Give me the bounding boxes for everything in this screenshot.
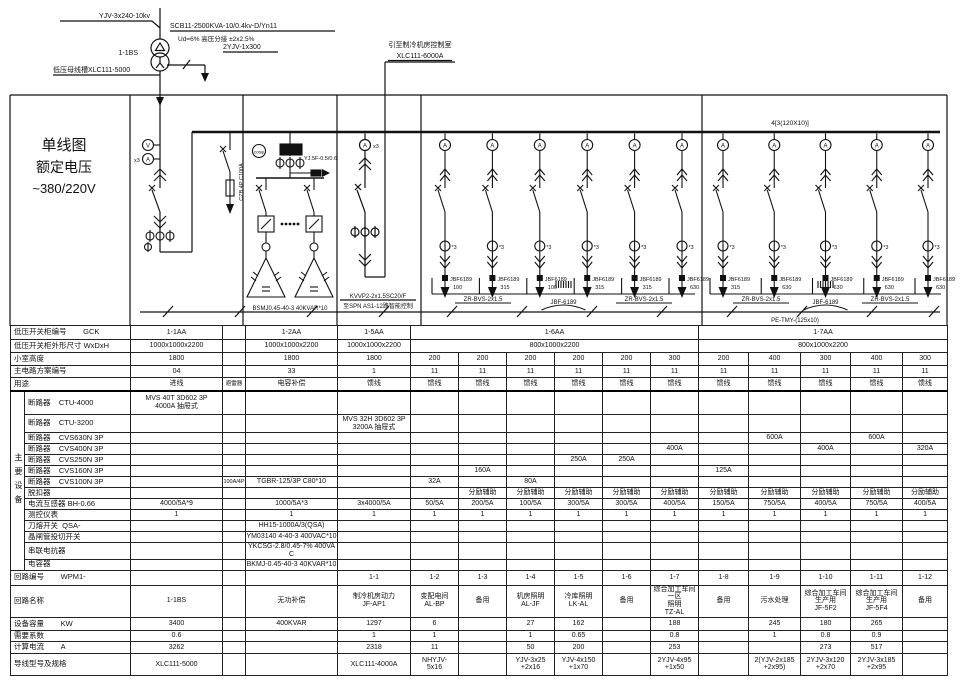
table-cell: 245 xyxy=(749,617,801,630)
table-cell: 馈线 xyxy=(555,378,603,391)
row-label: 断路器 CVS400N 3P xyxy=(25,444,131,455)
table-cell: 馈线 xyxy=(749,378,801,391)
table-cell xyxy=(507,391,555,415)
module-rating-label: 630 xyxy=(885,285,894,291)
table-cell: 1000/5A*3 xyxy=(246,499,338,510)
table-cell: 1 xyxy=(338,366,411,378)
table-cell xyxy=(338,488,411,499)
module-rating-label: 315 xyxy=(500,285,509,291)
table-cell: 馈线 xyxy=(801,378,851,391)
feeder-circuit: A*3JBF6189630 xyxy=(813,134,853,299)
row-label: 断路器 CVS250N 3P xyxy=(25,455,131,466)
row-label: 小室高度 xyxy=(11,353,131,366)
row-label: 测控仪表 xyxy=(25,510,131,521)
table-cell xyxy=(459,532,507,543)
table-cell xyxy=(338,559,411,570)
table-row: 断路器 CVS400N 3P400A400A320A xyxy=(11,444,948,455)
table-cell: YKCSG-2.8/0.45-7% 400VAC xyxy=(246,543,338,560)
table-cell: 80A xyxy=(507,477,555,488)
table-cell: YM03140 4-40-3 400VAC*10 xyxy=(246,532,338,543)
fire-module-icon xyxy=(679,275,685,281)
feeder-circuit: A*3JBF6189630 xyxy=(669,134,709,299)
transformer-spec2-label: Ud=6% 高压分接 ±2x2.5% xyxy=(178,34,255,43)
table-row: 设备容量 KW3400400KVAR1297627162188245180265 xyxy=(11,617,948,630)
arrow-down-icon xyxy=(924,287,933,298)
table-cell: 3400 xyxy=(131,617,223,630)
table-cell xyxy=(851,477,903,488)
table-cell xyxy=(246,653,338,675)
module-cable-label: ZR-BVS-2x1.5 xyxy=(464,297,503,303)
table-cell xyxy=(411,543,459,560)
table-cell xyxy=(223,653,246,675)
row-label: 电流互感器 BH-0.66 xyxy=(25,499,131,510)
table-cell: 100A/4P xyxy=(223,477,246,488)
table-cell xyxy=(507,532,555,543)
table-cell xyxy=(699,455,749,466)
row-label: 断路器 CVS630N 3P xyxy=(25,433,131,444)
table-cell xyxy=(801,391,851,415)
table-cell xyxy=(223,433,246,444)
capacitor-bank-section xyxy=(253,133,331,225)
fuse-icon xyxy=(311,170,321,176)
row-label: 电容器 xyxy=(25,559,131,570)
table-cell: 300 xyxy=(903,353,948,366)
table-cell xyxy=(411,532,459,543)
table-cell xyxy=(246,455,338,466)
table-cell: 800x1000x2200 xyxy=(699,340,948,353)
table-cell xyxy=(801,521,851,532)
breaker-icon xyxy=(767,190,774,212)
table-cell: 0.9 xyxy=(851,630,903,641)
table-cell: 11 xyxy=(555,366,603,378)
table-cell xyxy=(851,521,903,532)
table-cell xyxy=(749,415,801,433)
table-cell xyxy=(338,466,411,477)
table-row: 断路器 CVS160N 3P160A125A xyxy=(11,466,948,477)
table-cell: 400A xyxy=(801,444,851,455)
table-cell: 11 xyxy=(459,366,507,378)
table-cell xyxy=(749,543,801,560)
table-cell: 分励辅助 xyxy=(851,488,903,499)
table-cell: 1-1BS xyxy=(131,585,223,617)
table-cell xyxy=(603,543,651,560)
table-cell xyxy=(651,543,699,560)
table-cell: 517 xyxy=(851,641,903,653)
table-row: 串联电抗器YKCSG-2.8/0.45-7% 400VAC xyxy=(11,543,948,560)
table-cell: 1 xyxy=(749,510,801,521)
arrester-icon xyxy=(226,204,234,214)
table-cell: 1-2AA xyxy=(246,326,338,340)
table-cell: 162 xyxy=(555,617,603,630)
table-cell xyxy=(411,488,459,499)
table-cell xyxy=(801,455,851,466)
table-cell xyxy=(603,559,651,570)
table-cell xyxy=(749,559,801,570)
table-cell xyxy=(507,559,555,570)
table-cell xyxy=(411,559,459,570)
table-cell: 1 xyxy=(411,630,459,641)
table-cell: 1800 xyxy=(131,353,223,366)
feeder-circuit: A*3JBF6189315 xyxy=(574,134,614,299)
ct-count-label: *3 xyxy=(781,245,786,251)
table-cell: 1-6 xyxy=(603,570,651,585)
table-cell: 600A xyxy=(749,433,801,444)
breaker-icon xyxy=(357,190,365,212)
ct-count-label: *3 xyxy=(689,245,694,251)
ct-count-label: *3 xyxy=(935,245,940,251)
table-row: 脱扣器分励辅助分励辅助分励辅助分励辅助分励辅助分励辅助分励辅助分励辅助分励辅助分… xyxy=(11,488,948,499)
table-cell: 200 xyxy=(459,353,507,366)
module-model-label: JBF6189 xyxy=(882,277,904,283)
ammeter-label: A xyxy=(443,144,447,150)
table-cell: 32A xyxy=(411,477,459,488)
table-cell: 1-3 xyxy=(459,570,507,585)
row-label: 串联电抗器 xyxy=(25,543,131,560)
table-cell: 6 xyxy=(411,617,459,630)
table-row: 晶闸管投切开关YM03140 4-40-3 400VAC*10 xyxy=(11,532,948,543)
table-cell xyxy=(699,521,749,532)
reactor-icon xyxy=(262,243,270,251)
table-cell xyxy=(603,466,651,477)
module-cable-label: ZR-BVS-2x1.5 xyxy=(871,297,910,303)
ammeter-label: A xyxy=(680,144,684,150)
fire-module-icon xyxy=(584,275,590,281)
arrow-down-icon xyxy=(535,287,544,298)
table-cell xyxy=(801,477,851,488)
cosphi-label: cosφ xyxy=(254,150,264,155)
table-cell xyxy=(411,415,459,433)
ct-icon xyxy=(276,157,304,169)
table-cell: 1-7AA xyxy=(699,326,948,340)
table-cell xyxy=(749,466,801,477)
table-cell xyxy=(555,477,603,488)
table-cell xyxy=(223,641,246,653)
table-cell xyxy=(338,391,411,415)
table-cell xyxy=(603,415,651,433)
table-cell xyxy=(603,532,651,543)
table-cell xyxy=(749,444,801,455)
breaker-icon xyxy=(675,190,682,212)
table-cell: 2318 xyxy=(338,641,411,653)
table-cell: 3x4000/5A xyxy=(338,499,411,510)
transformer-spec-label: SCB11-2500KVA-10/0.4kv-D/Yn11 xyxy=(170,23,277,30)
table-row: 主电路方案编号043311111111111111111111111 xyxy=(11,366,948,378)
module-model-label: JBF6189 xyxy=(592,277,614,283)
ct-count-label: *3 xyxy=(452,245,457,251)
table-cell: 160A xyxy=(459,466,507,477)
table-cell xyxy=(338,433,411,444)
table-cell: 馈线 xyxy=(459,378,507,391)
module-model-label: JBF6189 xyxy=(497,277,519,283)
table-cell: 200 xyxy=(507,353,555,366)
table-cell xyxy=(459,521,507,532)
table-row: 断路器 CVS100N 3P100A/4PTGBR-125/3P C80*103… xyxy=(11,477,948,488)
row-label: 晶闸管投切开关 xyxy=(25,532,131,543)
busbar-size-label: 4[3(120X10)] xyxy=(771,120,809,127)
row-label: 回路编号 WPM1- xyxy=(11,570,131,585)
ammeter-label: A xyxy=(538,144,542,150)
table-cell: YJV-3x25 +2x16 xyxy=(507,653,555,675)
table-cell: 2YJV-3x120 +2x70 xyxy=(801,653,851,675)
ammeter-label: A xyxy=(146,158,150,164)
controller-box xyxy=(280,144,302,155)
table-cell xyxy=(651,521,699,532)
table-cell: 273 xyxy=(801,641,851,653)
table-cell xyxy=(246,630,338,641)
ammeter-label: A xyxy=(490,144,494,150)
table-cell xyxy=(131,455,223,466)
arrester-spec-label: CZB 4P C100A xyxy=(239,163,245,201)
table-cell xyxy=(223,570,246,585)
table-cell: 机房照明 AL-JF xyxy=(507,585,555,617)
table-cell xyxy=(459,433,507,444)
table-cell xyxy=(555,391,603,415)
fire-module-icon xyxy=(632,275,638,281)
table-cell: 100/5A xyxy=(507,499,555,510)
table-cell: 11 xyxy=(699,366,749,378)
table-cell xyxy=(651,415,699,433)
table-cell: 分励辅助 xyxy=(459,488,507,499)
table-cell: 1-7 xyxy=(651,570,699,585)
table-cell xyxy=(246,466,338,477)
table-cell: 11 xyxy=(851,366,903,378)
table-cell xyxy=(651,466,699,477)
table-cell: 1 xyxy=(246,510,338,521)
table-cell xyxy=(459,444,507,455)
table-cell xyxy=(223,415,246,433)
table-cell: 1000x1000x2200 xyxy=(246,340,338,353)
feeder-circuit: A*3JBF6189315 xyxy=(622,134,662,299)
table-cell: 0.8 xyxy=(651,630,699,641)
table-cell xyxy=(223,543,246,560)
table-cell xyxy=(903,641,948,653)
table-cell xyxy=(749,391,801,415)
table-cell xyxy=(555,415,603,433)
rated-voltage-value: ~380/220V xyxy=(32,181,96,196)
schedule-table-container: 低压开关柜编号 GCK1-1AA1-2AA1-5AA1-6AA1-7AA低压开关… xyxy=(10,325,948,676)
table-cell: 200 xyxy=(555,641,603,653)
table-cell: TGBR-125/3P C80*10 xyxy=(246,477,338,488)
table-cell xyxy=(851,466,903,477)
ammeter-label: A xyxy=(585,144,589,150)
table-cell xyxy=(459,477,507,488)
arrow-down-icon xyxy=(821,287,830,298)
table-cell: 300/5A xyxy=(555,499,603,510)
table-row: 电流互感器 BH-0.664000/5A*91000/5A*33x4000/5A… xyxy=(11,499,948,510)
row-label: 断路器 CVS160N 3P xyxy=(25,466,131,477)
table-cell: 电容补偿 xyxy=(246,378,338,391)
table-cell: 避雷器 xyxy=(223,378,246,391)
aa5-dest-label: 至SPN AS1-12路智能控制 xyxy=(343,302,413,310)
table-cell xyxy=(851,391,903,415)
table-cell: 1-9 xyxy=(749,570,801,585)
table-cell xyxy=(223,521,246,532)
table-cell: 265 xyxy=(851,617,903,630)
module-rating-label: 630 xyxy=(782,285,791,291)
table-cell: 0.65 xyxy=(555,630,603,641)
table-row: 小室高度180018001800200200200200200300200400… xyxy=(11,353,948,366)
table-cell xyxy=(338,543,411,560)
module-cable-label: ZR-BVS-2x1.5 xyxy=(742,297,781,303)
table-cell: NHYJV- 5x16 xyxy=(411,653,459,675)
table-cell xyxy=(459,630,507,641)
incoming-circuit xyxy=(143,140,175,253)
table-cell xyxy=(699,477,749,488)
table-cell xyxy=(699,433,749,444)
table-cell xyxy=(801,559,851,570)
reactor-icon xyxy=(310,243,318,251)
table-cell xyxy=(903,543,948,560)
table-cell: 400/5A xyxy=(801,499,851,510)
table-cell: 400/5A xyxy=(651,499,699,510)
table-cell: 1 xyxy=(507,510,555,521)
ammeter-label: A xyxy=(772,144,776,150)
table-cell xyxy=(749,641,801,653)
table-cell xyxy=(131,559,223,570)
table-cell xyxy=(851,559,903,570)
table-cell xyxy=(411,391,459,415)
module-model-label: JBF6189 xyxy=(933,277,955,283)
module-model-label: JBF6189 xyxy=(687,277,709,283)
table-cell xyxy=(851,444,903,455)
table-cell xyxy=(903,391,948,415)
breaker-icon xyxy=(628,190,635,212)
table-row: 回路编号 WPM1-1-11-21-31-41-51-61-71-81-91-1… xyxy=(11,570,948,585)
ct-count-label: *3 xyxy=(499,245,504,251)
table-cell xyxy=(223,488,246,499)
breaker-icon xyxy=(870,190,877,212)
table-cell: 备用 xyxy=(699,585,749,617)
table-cell: 250A xyxy=(603,455,651,466)
aa5-feeder xyxy=(340,134,416,301)
table-cell: 11 xyxy=(411,366,459,378)
table-cell xyxy=(131,433,223,444)
fire-module-icon xyxy=(537,275,543,281)
ct-icon xyxy=(351,226,379,238)
row-label: 断路器 CVS100N 3P xyxy=(25,477,131,488)
table-cell xyxy=(801,466,851,477)
table-cell: 1-10 xyxy=(801,570,851,585)
table-cell: 分励辅助 xyxy=(603,488,651,499)
module-rating-label: 315 xyxy=(731,285,740,291)
table-cell: 11 xyxy=(801,366,851,378)
hv-cable-label: YJV-3x240-10kv xyxy=(99,13,150,20)
table-cell: 1 xyxy=(903,510,948,521)
fire-module-icon xyxy=(442,275,448,281)
module-rating-label: 315 xyxy=(595,285,604,291)
table-cell xyxy=(459,653,507,675)
title-block: 单线图 额定电压 ~380/220V xyxy=(32,137,96,196)
table-cell xyxy=(459,415,507,433)
table-row: 断路器 CTU-3200MVS 32H 3D602 3P 3200A 抽屉式 xyxy=(11,415,948,433)
table-cell: 180 xyxy=(801,617,851,630)
table-cell: 0.6 xyxy=(131,630,223,641)
table-cell: 0.8 xyxy=(801,630,851,641)
table-cell xyxy=(903,630,948,641)
table-cell xyxy=(507,521,555,532)
aa5-cable-label: KVVP2-2x1.5SC20/F xyxy=(350,294,407,300)
table-cell xyxy=(651,532,699,543)
table-row: 电容器BKMJ-0.45-40-3 40KVAR*10 xyxy=(11,559,948,570)
feeder-group: A*3JBF6189100A*3JBF6189315A*3JBF6189100A… xyxy=(432,134,709,311)
table-cell: 1 xyxy=(651,510,699,521)
table-cell xyxy=(699,444,749,455)
table-cell: 分励辅助 xyxy=(507,488,555,499)
table-cell: 11 xyxy=(507,366,555,378)
table-cell: 综合加工车间 生产用 JF-5F4 xyxy=(851,585,903,617)
table-cell xyxy=(651,455,699,466)
table-cell xyxy=(507,444,555,455)
table-cell xyxy=(459,543,507,560)
control-wiring-dots xyxy=(281,223,300,226)
voltmeter-label: V xyxy=(146,144,150,150)
table-cell: YJV-4x150 +1x70 xyxy=(555,653,603,675)
row-label: 用途 xyxy=(11,378,131,391)
table-cell: 400 xyxy=(749,353,801,366)
ground-icon xyxy=(201,73,209,82)
table-cell: 200 xyxy=(555,353,603,366)
table-cell xyxy=(459,455,507,466)
table-cell: 1 xyxy=(131,510,223,521)
table-cell: 分励辅助 xyxy=(801,488,851,499)
ct-count-label: *3 xyxy=(730,245,735,251)
table-cell xyxy=(603,617,651,630)
ammeter-label: A xyxy=(633,144,637,150)
table-cell: 300 xyxy=(651,353,699,366)
table-cell: 800x1000x2200 xyxy=(411,340,699,353)
table-cell: 1-1AA xyxy=(131,326,223,340)
table-cell: 馈线 xyxy=(411,378,459,391)
table-cell: 1-2 xyxy=(411,570,459,585)
row-label: 回路名称 xyxy=(11,585,131,617)
table-cell xyxy=(223,630,246,641)
feeder-circuit: A*3JBF6189100 xyxy=(527,134,567,299)
table-cell xyxy=(338,521,411,532)
ammeter-label: A xyxy=(926,144,930,150)
row-label: 计算电流 A xyxy=(11,641,131,653)
table-row: 用途进线避雷器电容补偿馈线馈线馈线馈线馈线馈线馈线馈线馈线馈线馈线馈线 xyxy=(11,378,948,391)
table-cell: 33 xyxy=(246,366,338,378)
fire-module-icon xyxy=(823,275,829,281)
table-cell xyxy=(507,466,555,477)
breaker-icon xyxy=(819,190,826,212)
arrow-down-icon xyxy=(678,287,687,298)
table-cell: 400/5A xyxy=(903,499,948,510)
module-cable-label: ZR-BVS-2x1.5 xyxy=(625,297,664,303)
table-cell xyxy=(246,570,338,585)
table-cell: 备用 xyxy=(459,585,507,617)
table-cell: 50/5A xyxy=(411,499,459,510)
table-cell xyxy=(903,532,948,543)
table-cell: 变配电间 AL-BP xyxy=(411,585,459,617)
table-cell xyxy=(459,391,507,415)
table-cell xyxy=(603,641,651,653)
breaker-icon xyxy=(438,190,445,212)
cap-ct-label: YJ.5F-0.5/0.6 xyxy=(304,156,337,162)
table-cell: 200/5A xyxy=(459,499,507,510)
table-cell xyxy=(801,532,851,543)
table-cell: 冷库照明 LK-AL xyxy=(555,585,603,617)
capacitor-branches xyxy=(247,178,333,297)
feeder-groups: A*3JBF6189100A*3JBF6189315A*3JBF6189100A… xyxy=(432,134,955,311)
table-cell: 125A xyxy=(699,466,749,477)
module-rating-label: 630 xyxy=(834,285,843,291)
table-cell xyxy=(603,391,651,415)
breaker-icon xyxy=(152,190,160,212)
fire-module-icon xyxy=(925,275,931,281)
ammeter-label: A xyxy=(721,144,725,150)
table-cell: 750/5A xyxy=(749,499,801,510)
